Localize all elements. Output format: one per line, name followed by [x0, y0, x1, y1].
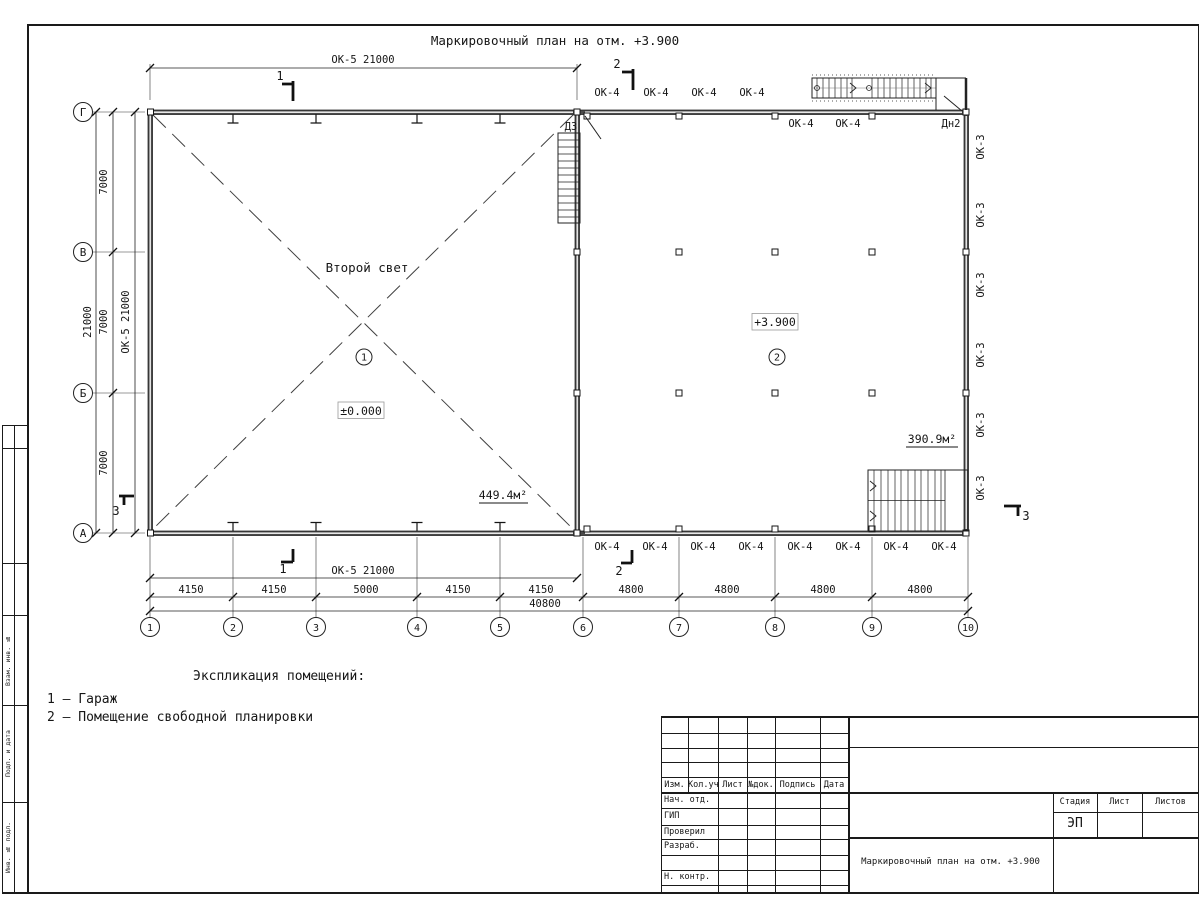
section-mark-3-left: 3 — [112, 504, 119, 518]
dim-4150: 4150 — [261, 584, 286, 596]
window-ok3: ОК-3 — [975, 134, 987, 159]
tb-header-koluch: Кол.уч — [688, 780, 718, 790]
legend-item: 2 – Помещение свободной планировки — [47, 710, 313, 725]
dim-4150: 4150 — [445, 584, 470, 596]
titleblock-line — [661, 855, 848, 856]
window-ok4: ОК-4 — [835, 118, 860, 130]
pilaster-marks — [228, 115, 506, 532]
tb-row-nachotd: Нач. отд. — [664, 795, 710, 805]
door-dn2: Дн2 — [942, 118, 961, 130]
dim-7000: 7000 — [98, 309, 110, 334]
window-ok4: ОК-4 — [931, 541, 956, 553]
window-ok4: ОК-4 — [883, 541, 908, 553]
window-ok4: ОК-4 — [788, 118, 813, 130]
titleblock-line — [661, 870, 848, 871]
door-dn2-swing — [944, 96, 962, 111]
dim-4150: 4150 — [528, 584, 553, 596]
dim-21000-left: 21000 — [82, 306, 94, 338]
axis-number: 7 — [676, 623, 682, 634]
dim-ok5-top: ОК-5 21000 — [331, 54, 394, 66]
tb-row-gip: ГИП — [664, 811, 679, 821]
door-d3: Д3 — [565, 121, 578, 133]
tb-header-list2: Лист — [1097, 797, 1142, 807]
window-ok3: ОК-3 — [975, 475, 987, 500]
tb-header-stadiya: Стадия — [1053, 797, 1097, 807]
titleblock-line — [1053, 793, 1054, 893]
stair-interior — [868, 470, 968, 531]
section-mark-1-top: 1 — [276, 69, 283, 83]
strip-label-inv: Инв. № подл. — [2, 802, 14, 893]
titleblock-line — [718, 717, 719, 893]
dim-ok5-left: ОК-5 21000 — [120, 290, 132, 353]
axis-number: 4 — [414, 623, 420, 634]
window-ok4: ОК-4 — [691, 87, 716, 99]
window-ok3: ОК-3 — [975, 272, 987, 297]
titleblock-line — [747, 717, 748, 893]
titleblock-line — [848, 717, 850, 893]
titleblock-line — [661, 792, 1199, 794]
tb-doc-title: Маркировочный план на отм. +3.900 — [851, 857, 1050, 867]
titleblock-line — [661, 777, 848, 778]
window-ok3: ОК-3 — [975, 342, 987, 367]
window-ok3: ОК-3 — [975, 412, 987, 437]
axis-number: 6 — [580, 623, 586, 634]
window-ok4: ОК-4 — [642, 541, 667, 553]
dim-4800: 4800 — [810, 584, 835, 596]
window-ok3: ОК-3 — [975, 202, 987, 227]
titleblock-line — [848, 747, 1199, 748]
dim-4800: 4800 — [907, 584, 932, 596]
section-mark-1-bottom: 1 — [279, 562, 286, 576]
window-ok4: ОК-4 — [787, 541, 812, 553]
tb-header-list: Лист — [718, 780, 747, 790]
window-ok4: ОК-4 — [594, 541, 619, 553]
tb-row-proveril: Проверил — [664, 827, 705, 837]
tb-header-izm: Изм. — [661, 780, 688, 790]
window-ok4: ОК-4 — [738, 541, 763, 553]
dim-40800: 40800 — [529, 598, 561, 610]
tb-stage-value: ЭП — [1053, 816, 1097, 831]
axis-number: 10 — [962, 623, 974, 634]
door-d3-swing — [585, 116, 601, 139]
elevation-3900: +3.900 — [754, 315, 796, 329]
strip-label-podp: Подп. и дата — [2, 705, 14, 802]
window-ok4: ОК-4 — [594, 87, 619, 99]
titleblock-line — [661, 748, 848, 749]
tb-row-nkontr: Н. контр. — [664, 872, 710, 882]
tb-header-listov: Листов — [1142, 797, 1199, 807]
tb-header-podpis: Подпись — [775, 780, 820, 790]
second-light-note: Второй свет — [326, 260, 409, 275]
frame-bottom — [2, 892, 1199, 894]
dim-ok5-bottom: ОК-5 21000 — [331, 565, 394, 577]
titleblock-line — [661, 733, 848, 734]
dim-5000: 5000 — [353, 584, 378, 596]
window-ok4: ОК-4 — [739, 87, 764, 99]
axis-number: 3 — [313, 623, 319, 634]
room-area-2: 390.9м² — [908, 432, 956, 446]
tb-header-ndok: №док. — [747, 780, 775, 790]
axis-number: 9 — [869, 623, 875, 634]
axis-letter: В — [80, 246, 87, 259]
dimension-lines — [96, 68, 968, 611]
axis-letter: Б — [80, 387, 87, 400]
room-area-1: 449.4м² — [479, 488, 527, 502]
titleblock-line — [661, 762, 848, 763]
dim-7000: 7000 — [98, 450, 110, 475]
tb-row-razrab: Разраб. — [664, 841, 700, 851]
section-mark-2-bottom: 2 — [615, 564, 622, 578]
axis-number: 5 — [497, 623, 503, 634]
room-number: 2 — [774, 353, 780, 364]
titleblock-line — [661, 885, 848, 886]
stair-external — [812, 75, 966, 110]
elevation-0: ±0.000 — [340, 404, 382, 418]
dim-4800: 4800 — [714, 584, 739, 596]
dim-4150: 4150 — [178, 584, 203, 596]
room-number: 1 — [361, 353, 367, 364]
legend-heading: Экспликация помещений: — [193, 669, 365, 684]
tb-header-data: Дата — [820, 780, 848, 790]
titleblock-line — [848, 837, 1199, 839]
window-ok4: ОК-4 — [690, 541, 715, 553]
titleblock-line — [661, 716, 1199, 718]
titleblock-line — [661, 839, 848, 840]
floor-plan: ОК-5 2100012ОК-4ОК-4ОК-4ОК-4ОК-4ОК-4Дн2Д… — [0, 0, 1200, 660]
dim-7000: 7000 — [98, 169, 110, 194]
second-light-cross — [153, 115, 573, 529]
section-mark-2-top: 2 — [613, 57, 620, 71]
legend-item: 1 – Гараж — [47, 692, 117, 707]
window-ok4: ОК-4 — [835, 541, 860, 553]
section-flags — [119, 69, 1021, 563]
axis-number: 8 — [772, 623, 778, 634]
area-underlines — [479, 447, 958, 503]
axis-number: 1 — [147, 623, 153, 634]
titleblock-line — [661, 825, 848, 826]
drawing-sheet: Взам. инв. № Подп. и дата Инв. № подл. М… — [0, 0, 1200, 900]
axis-letter: А — [80, 527, 87, 540]
axis-letter: Г — [80, 106, 87, 119]
titleblock-line — [820, 717, 821, 893]
titleblock-line — [1053, 812, 1199, 813]
titleblock-line — [661, 717, 662, 893]
axis-number: 2 — [230, 623, 236, 634]
titleblock-line — [775, 717, 776, 893]
dim-4800: 4800 — [618, 584, 643, 596]
section-mark-3-right: 3 — [1022, 509, 1029, 523]
titleblock-line — [661, 808, 848, 809]
window-ok4: ОК-4 — [643, 87, 668, 99]
